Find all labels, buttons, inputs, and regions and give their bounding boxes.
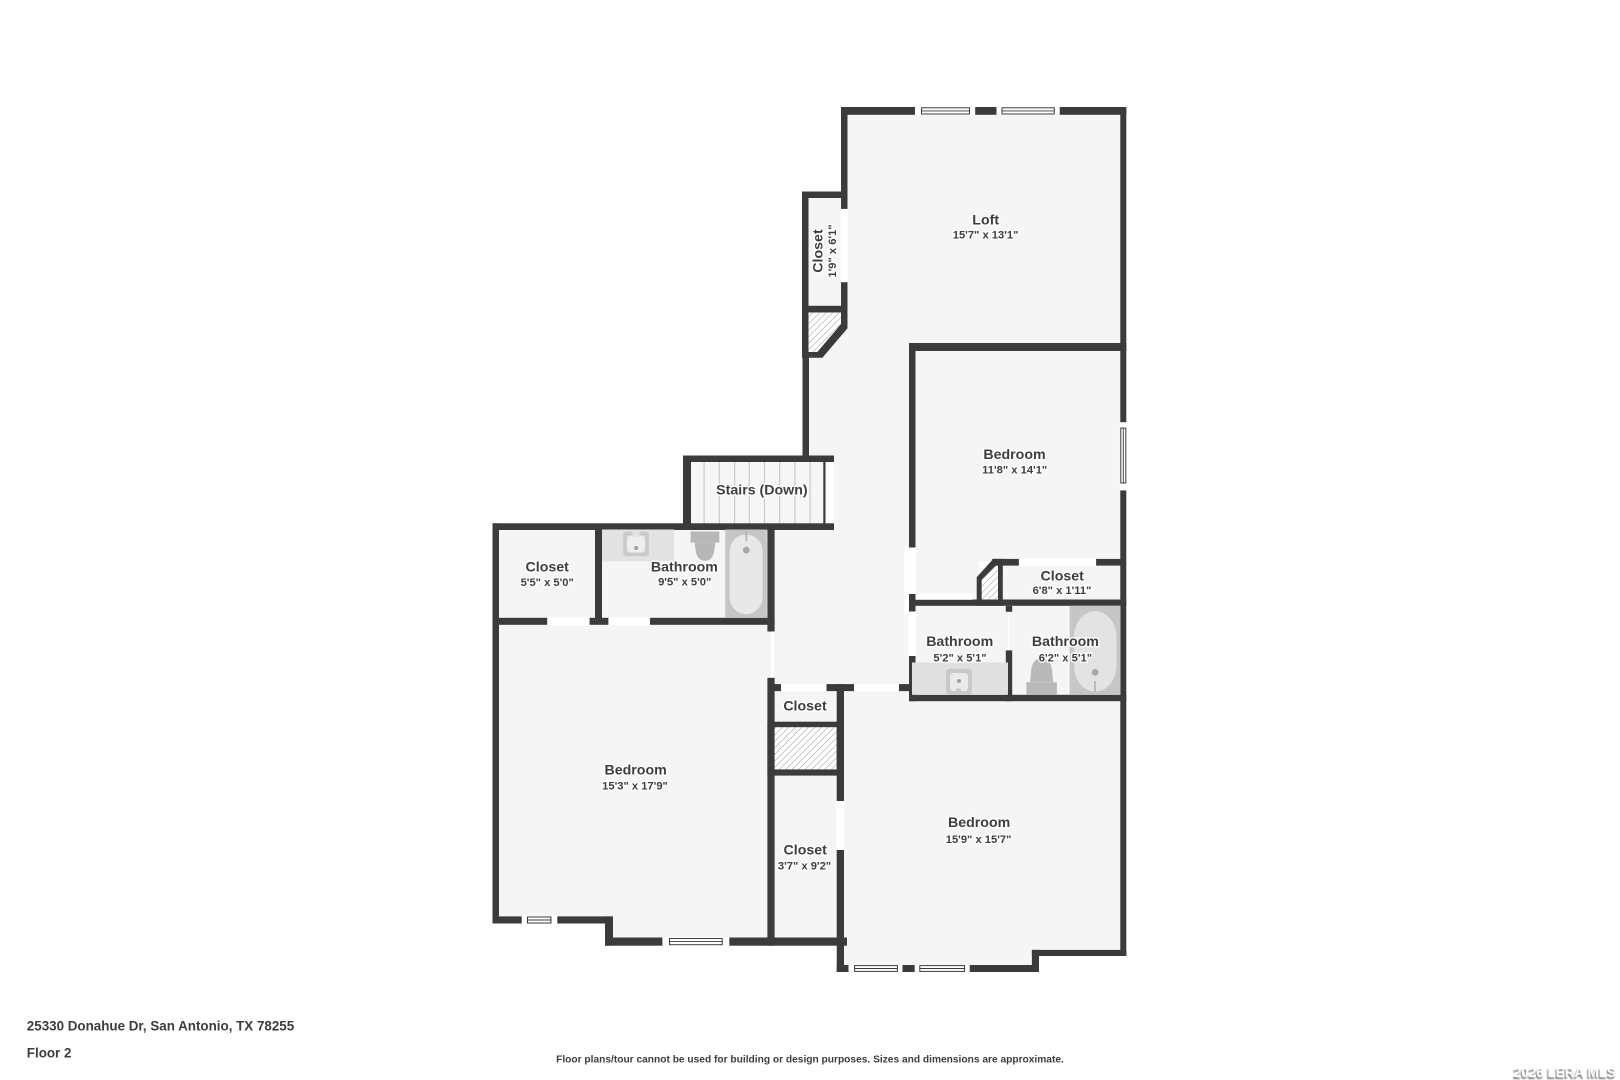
svg-text:Closet: Closet (526, 560, 570, 576)
svg-text:Closet: Closet (783, 699, 827, 715)
svg-text:9'5" x 5'0": 9'5" x 5'0" (658, 577, 711, 589)
svg-text:5'5" x 5'0": 5'5" x 5'0" (521, 577, 574, 589)
svg-text:15'3" x 17'9": 15'3" x 17'9" (602, 781, 668, 793)
svg-text:Stairs (Down): Stairs (Down) (716, 483, 808, 499)
svg-text:Floor 2: Floor 2 (27, 1045, 72, 1060)
svg-text:1'9" x 6'1": 1'9" x 6'1" (827, 224, 839, 277)
svg-text:11'8" x 14'1": 11'8" x 14'1" (982, 464, 1047, 476)
svg-text:Closet: Closet (784, 843, 828, 859)
svg-text:5'2" x 5'1": 5'2" x 5'1" (933, 653, 986, 665)
svg-text:25330 Donahue Dr, San Antonio,: 25330 Donahue Dr, San Antonio, TX 78255 (27, 1019, 295, 1034)
svg-text:2026 LERA MLS: 2026 LERA MLS (1514, 1065, 1616, 1080)
svg-text:Floor plans/tour cannot be use: Floor plans/tour cannot be used for buil… (556, 1055, 1064, 1066)
svg-text:Bedroom: Bedroom (948, 815, 1010, 831)
svg-text:Bedroom: Bedroom (604, 762, 666, 778)
svg-text:15'7" x 13'1": 15'7" x 13'1" (953, 230, 1019, 242)
svg-text:Closet: Closet (1041, 569, 1085, 585)
svg-text:3'7" x 9'2": 3'7" x 9'2" (778, 861, 831, 873)
svg-text:Bathroom: Bathroom (926, 634, 993, 650)
svg-text:Bedroom: Bedroom (983, 447, 1045, 463)
svg-text:15'9" x 15'7": 15'9" x 15'7" (946, 834, 1012, 846)
svg-text:Bathroom: Bathroom (651, 559, 718, 575)
svg-text:Closet: Closet (811, 229, 827, 273)
svg-text:Loft: Loft (972, 212, 999, 228)
svg-text:6'2" x 5'1": 6'2" x 5'1" (1039, 653, 1092, 665)
svg-text:6'8" x 1'11": 6'8" x 1'11" (1033, 585, 1092, 597)
svg-text:Bathroom: Bathroom (1032, 634, 1099, 650)
